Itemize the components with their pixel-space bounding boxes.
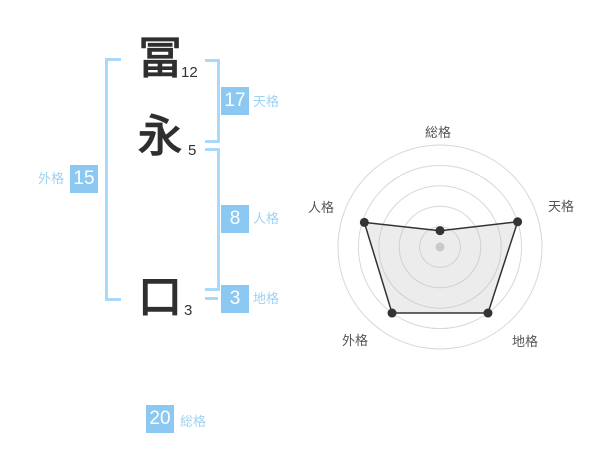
name-character-3: 口 [137, 276, 183, 320]
name-fortune-panel: 冨 12 永 5 口 3 17 天格 8 人格 3 地格 15 外格 20 総格… [0, 0, 600, 470]
name-character-2: 永 [137, 115, 183, 159]
gaikaku-label: 外格 [38, 172, 64, 186]
radar-data-point [436, 226, 445, 235]
soukaku-label: 総格 [180, 415, 206, 429]
radar-center-dot [436, 243, 445, 252]
radar-axis-label: 天格 [548, 199, 574, 214]
stroke-count-2: 5 [188, 143, 196, 158]
radar-data-polygon [364, 222, 517, 313]
chikaku-badge: 3 [221, 285, 249, 313]
tenkaku-badge: 17 [221, 87, 249, 115]
radar-axis-label: 外格 [342, 333, 368, 348]
radar-data-point [388, 309, 397, 318]
radar-axis-label: 総格 [425, 125, 451, 140]
chikaku-tick [205, 297, 218, 300]
tenkaku-bracket [205, 59, 220, 143]
chikaku-label: 地格 [253, 292, 279, 306]
radar-data-point [360, 218, 369, 227]
gaikaku-badge: 15 [70, 165, 98, 193]
stroke-count-3: 3 [184, 303, 192, 318]
radar-data-point [513, 217, 522, 226]
jinkaku-badge: 8 [221, 205, 249, 233]
radar-axis-label: 地格 [512, 334, 538, 349]
jinkaku-label: 人格 [253, 212, 279, 226]
jinkaku-bracket [205, 148, 220, 291]
fortune-radar-chart: 総格天格地格外格人格 [300, 105, 590, 365]
stroke-count-1: 12 [181, 65, 198, 80]
radar-axis-label: 人格 [308, 200, 334, 215]
radar-data-point [483, 309, 492, 318]
soukaku-badge: 20 [146, 405, 174, 433]
name-character-1: 冨 [137, 37, 183, 81]
tenkaku-label: 天格 [253, 95, 279, 109]
gaikaku-bracket [105, 58, 121, 301]
